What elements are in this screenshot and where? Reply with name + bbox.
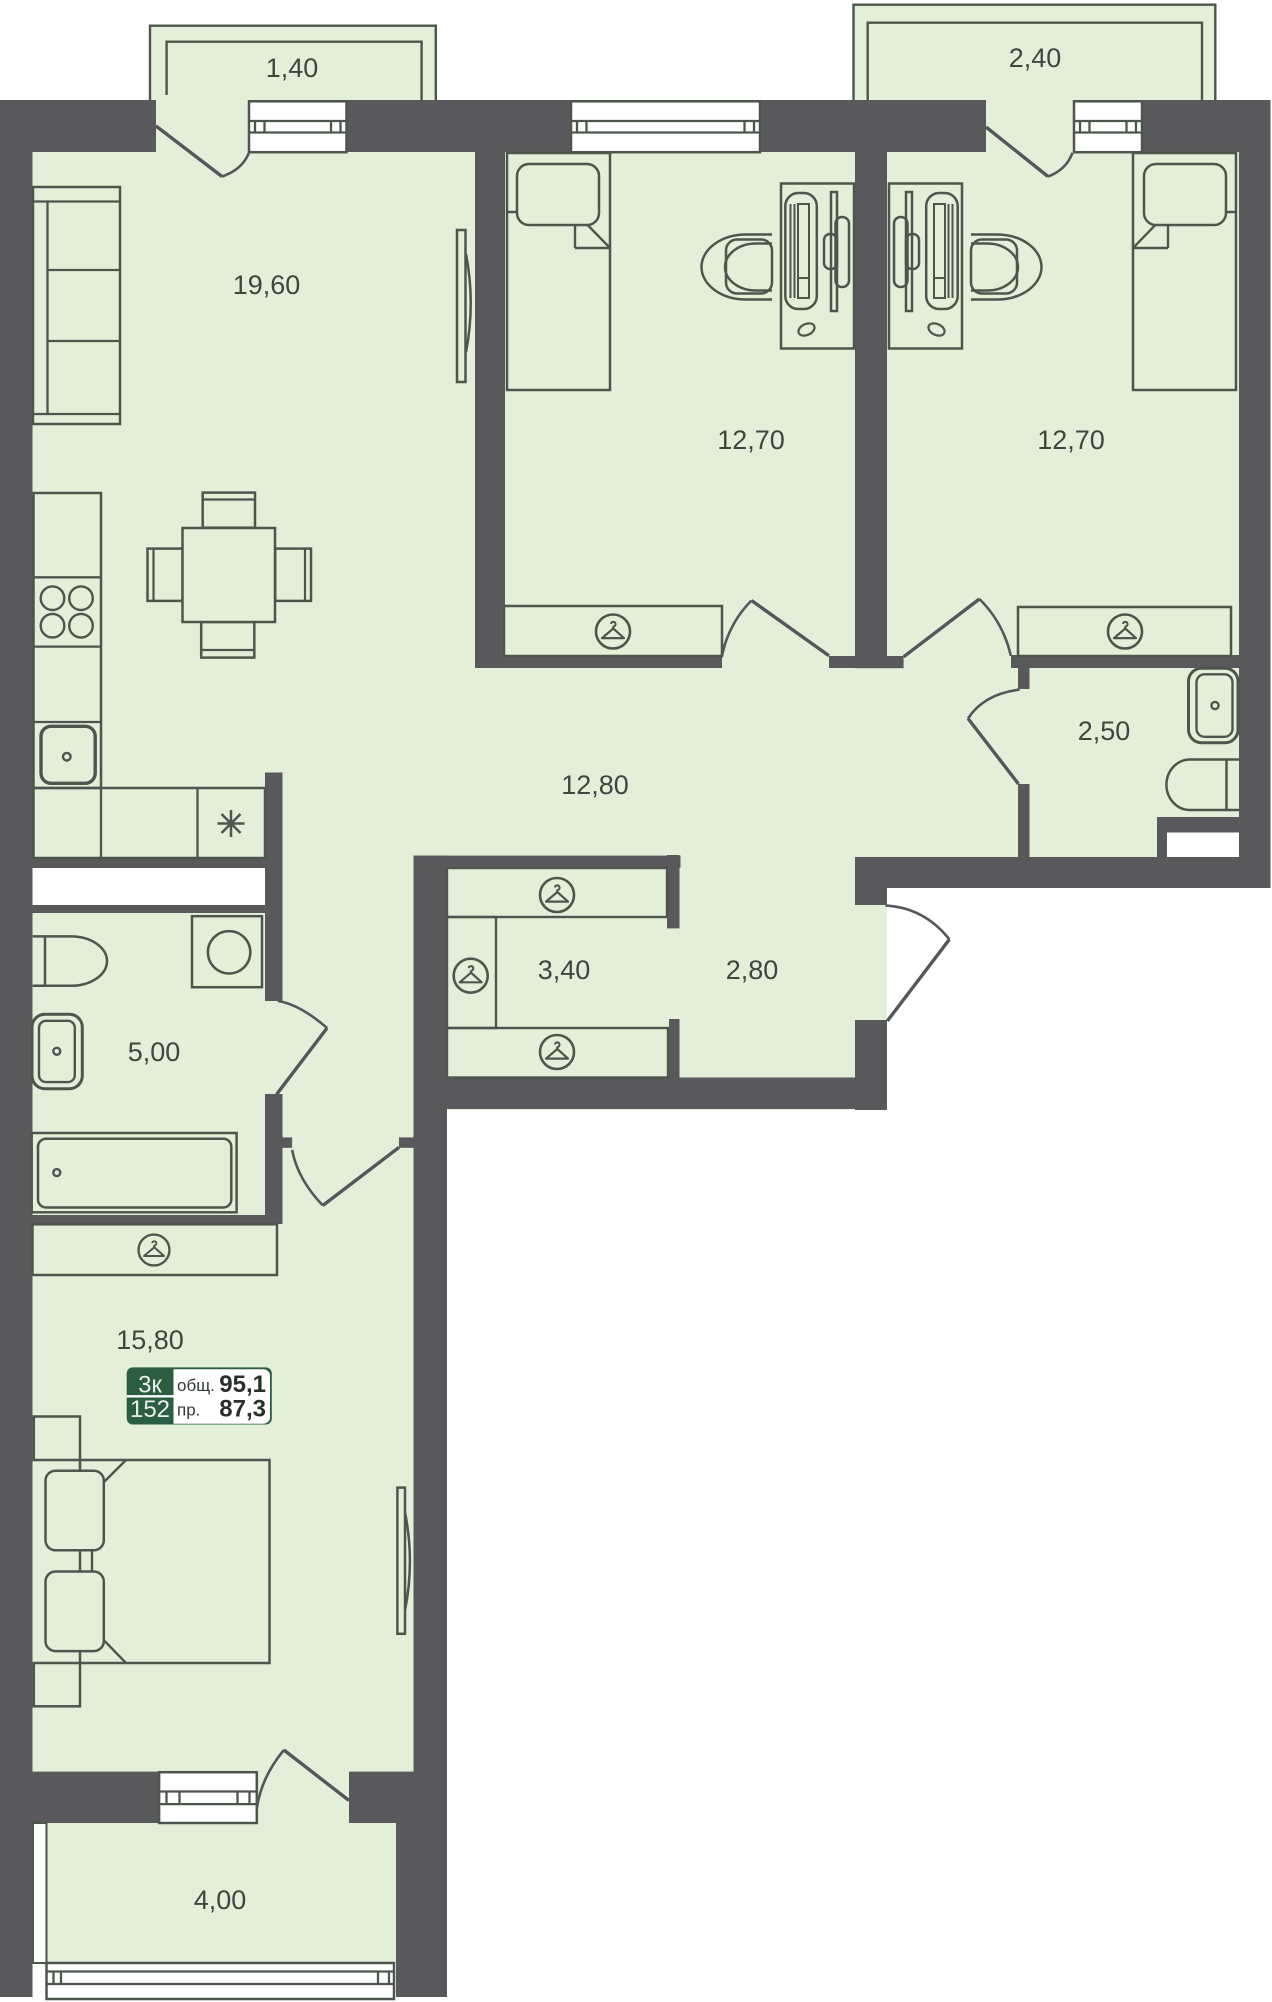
svg-text:4,00: 4,00 xyxy=(194,1885,247,1915)
svg-text:12,70: 12,70 xyxy=(717,425,785,455)
svg-text:общ.: общ. xyxy=(177,1376,215,1395)
svg-text:3к: 3к xyxy=(138,1372,162,1399)
svg-text:95,1: 95,1 xyxy=(219,1371,266,1398)
svg-text:87,3: 87,3 xyxy=(219,1396,266,1423)
svg-text:12,70: 12,70 xyxy=(1037,425,1105,455)
svg-text:3,40: 3,40 xyxy=(538,955,591,985)
svg-text:1,40: 1,40 xyxy=(266,53,319,83)
svg-text:15,80: 15,80 xyxy=(116,1325,184,1355)
svg-text:пр.: пр. xyxy=(177,1401,200,1420)
svg-text:2,80: 2,80 xyxy=(726,955,779,985)
svg-text:152: 152 xyxy=(130,1396,170,1423)
svg-text:2,40: 2,40 xyxy=(1009,43,1062,73)
svg-text:12,80: 12,80 xyxy=(561,770,629,800)
svg-text:19,60: 19,60 xyxy=(233,270,301,300)
svg-text:5,00: 5,00 xyxy=(128,1037,181,1067)
svg-text:2,50: 2,50 xyxy=(1078,716,1131,746)
